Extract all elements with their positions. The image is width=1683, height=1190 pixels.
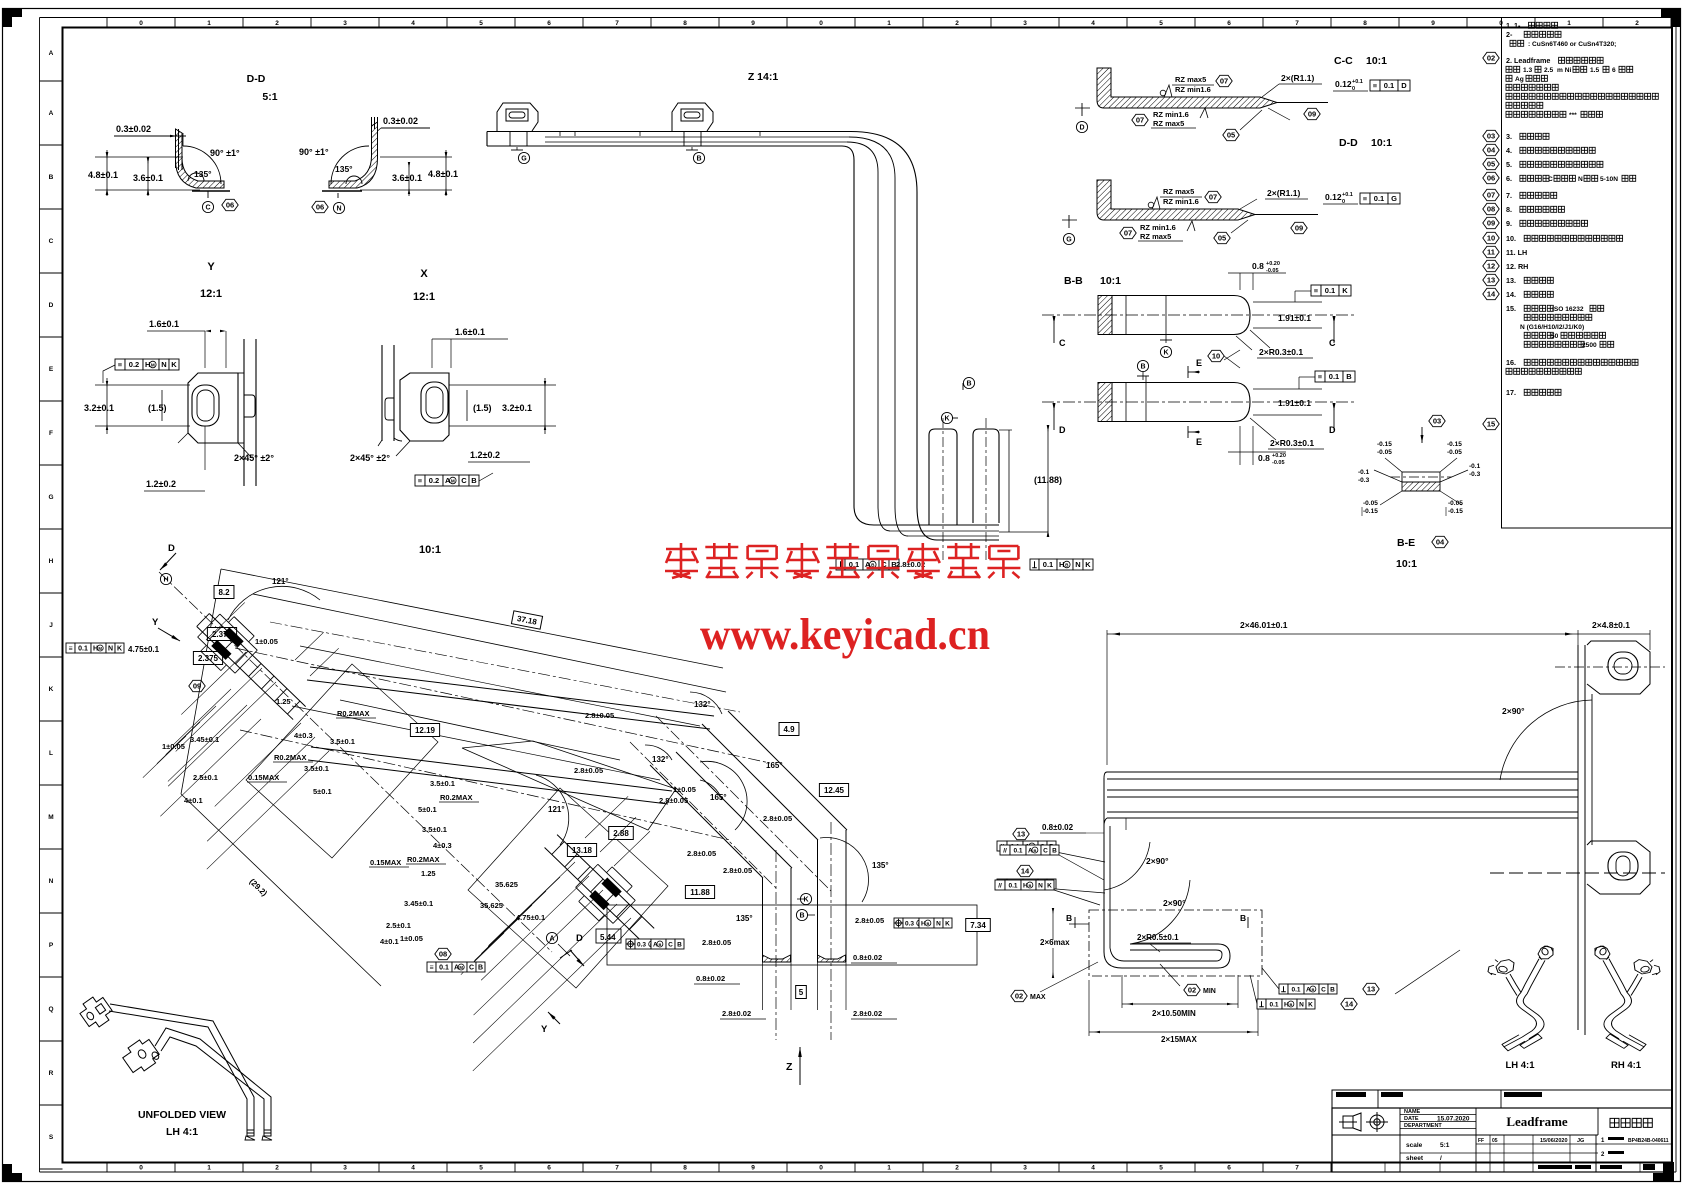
- svg-text:11.88: 11.88: [690, 888, 710, 897]
- svg-text:≡: ≡: [418, 476, 423, 485]
- svg-text:2.8±0.02: 2.8±0.02: [853, 1009, 882, 1018]
- svg-text:03: 03: [1433, 417, 1441, 426]
- svg-text:14: 14: [1345, 1000, 1354, 1009]
- svg-text:6: 6: [547, 20, 551, 27]
- svg-text:09: 09: [1308, 110, 1316, 119]
- svg-text:0.15MAX: 0.15MAX: [248, 773, 279, 782]
- svg-text:0.3±0.02: 0.3±0.02: [383, 116, 418, 126]
- svg-text:R0.2MAX: R0.2MAX: [337, 709, 370, 718]
- svg-text:1. 1-: 1. 1-: [1506, 21, 1521, 30]
- svg-text:B: B: [1028, 883, 1031, 888]
- svg-text:N (G16/H10/I2/J1/K0): N (G16/H10/I2/J1/K0): [1520, 324, 1584, 331]
- svg-text:RZ max5: RZ max5: [1175, 75, 1206, 84]
- svg-text:17.: 17.: [1506, 388, 1516, 397]
- svg-text:B: B: [1311, 987, 1314, 992]
- svg-text:E: E: [1196, 437, 1202, 447]
- svg-text:***: ***: [1569, 112, 1577, 119]
- svg-text:02: 02: [1487, 54, 1495, 63]
- svg-text:B: B: [1140, 364, 1145, 371]
- svg-text:4±0.1: 4±0.1: [380, 937, 399, 946]
- svg-text:13: 13: [1367, 985, 1375, 994]
- svg-text:-0.15: -0.15: [1448, 508, 1463, 515]
- svg-text:2: 2: [275, 20, 279, 27]
- svg-text:G: G: [521, 156, 527, 163]
- svg-text:10:1: 10:1: [1396, 558, 1417, 570]
- svg-text:JG: JG: [1577, 1138, 1584, 1144]
- svg-text:2.8±0.05: 2.8±0.05: [723, 866, 752, 875]
- svg-text:2500: 2500: [1582, 342, 1597, 349]
- svg-text:10:1: 10:1: [1371, 137, 1392, 149]
- svg-text:5.: 5.: [1506, 160, 1512, 169]
- svg-text:135°: 135°: [194, 169, 212, 179]
- svg-text:165°: 165°: [710, 793, 727, 802]
- svg-text:7: 7: [1295, 20, 1299, 27]
- svg-text:12: 12: [1487, 262, 1495, 271]
- svg-text:10: 10: [1212, 352, 1220, 361]
- svg-text:5±0.1: 5±0.1: [418, 805, 437, 814]
- svg-text:NAME: NAME: [1404, 1109, 1421, 1115]
- svg-text:2×R0.3±0.1: 2×R0.3±0.1: [1270, 438, 1314, 448]
- svg-text:-0.05: -0.05: [1363, 500, 1378, 507]
- svg-text:K: K: [117, 646, 122, 653]
- svg-text:2×(R1.1): 2×(R1.1): [1267, 188, 1300, 198]
- svg-text:2×90°: 2×90°: [1146, 856, 1169, 866]
- svg-text:06: 06: [316, 203, 324, 212]
- svg-text:5: 5: [479, 1165, 483, 1172]
- svg-text:A: A: [49, 110, 54, 117]
- svg-text:0.1: 0.1: [1269, 1002, 1278, 1009]
- svg-text:B: B: [471, 476, 477, 485]
- svg-text:0.1: 0.1: [1374, 194, 1384, 203]
- svg-text:D: D: [1079, 125, 1084, 132]
- svg-text:4: 4: [1091, 1165, 1095, 1172]
- svg-text:08: 08: [439, 950, 447, 959]
- svg-text:1±0.05: 1±0.05: [673, 785, 696, 794]
- svg-text:B: B: [478, 965, 483, 972]
- svg-text:8: 8: [1363, 20, 1367, 27]
- svg-text:2.8±0.02: 2.8±0.02: [722, 1009, 751, 1018]
- svg-text:2.8±0.05: 2.8±0.05: [659, 796, 688, 805]
- svg-text:2×90°: 2×90°: [1502, 706, 1525, 716]
- svg-text:3.: 3.: [1506, 132, 1512, 141]
- svg-text:0.1: 0.1: [1384, 81, 1394, 90]
- svg-text:1±0.05: 1±0.05: [162, 742, 185, 751]
- svg-text:D: D: [576, 933, 583, 944]
- svg-text:DATE: DATE: [1404, 1116, 1419, 1122]
- svg-text:D-D: D-D: [247, 73, 266, 85]
- svg-text:R0.2MAX: R0.2MAX: [407, 855, 440, 864]
- svg-text:132°: 132°: [652, 755, 669, 764]
- svg-text:50: 50: [1551, 333, 1559, 340]
- svg-text:2.8±0.05: 2.8±0.05: [702, 938, 731, 947]
- svg-text:G: G: [1066, 237, 1072, 244]
- svg-text:15: 15: [1487, 420, 1495, 429]
- svg-text:≡: ≡: [1363, 194, 1368, 203]
- svg-text:9: 9: [751, 20, 755, 27]
- svg-text:3.5±0.1: 3.5±0.1: [430, 779, 455, 788]
- svg-text:: CuSn6T460 or CuSn4T320;: : CuSn6T460 or CuSn4T320;: [1528, 41, 1616, 48]
- svg-text:9.: 9.: [1506, 219, 1512, 228]
- svg-text:UNFOLDED VIEW: UNFOLDED VIEW: [138, 1109, 226, 1121]
- svg-text:2×6max: 2×6max: [1040, 938, 1070, 947]
- svg-text:RZ min1.6: RZ min1.6: [1153, 110, 1189, 119]
- svg-text:0.8±0.02: 0.8±0.02: [853, 953, 882, 962]
- svg-text:B: B: [1346, 372, 1352, 381]
- svg-text:M: M: [98, 646, 102, 651]
- svg-text:N: N: [161, 360, 166, 369]
- svg-text:12. RH: 12. RH: [1506, 262, 1528, 271]
- svg-text:K: K: [1047, 883, 1052, 890]
- svg-text:4.75±0.1: 4.75±0.1: [128, 645, 160, 654]
- svg-text:C: C: [668, 942, 673, 949]
- svg-text:B: B: [1240, 913, 1246, 923]
- svg-text:C-C: C-C: [1334, 55, 1353, 67]
- svg-text:N: N: [1038, 883, 1043, 890]
- svg-text:2×46.01±0.1: 2×46.01±0.1: [1240, 620, 1288, 630]
- svg-text:2: 2: [955, 20, 959, 27]
- svg-text:A: A: [549, 936, 554, 943]
- svg-text:K: K: [803, 897, 808, 904]
- svg-text:6: 6: [1612, 67, 1616, 74]
- svg-text:N: N: [49, 878, 54, 885]
- svg-text:2×R0.3±0.1: 2×R0.3±0.1: [1259, 347, 1303, 357]
- svg-text:N: N: [108, 646, 113, 653]
- svg-text:6.: 6.: [1506, 174, 1512, 183]
- svg-text:sheet: sheet: [1406, 1155, 1424, 1162]
- svg-text:06: 06: [226, 201, 234, 210]
- svg-text:2: 2: [955, 1165, 959, 1172]
- svg-text:05: 05: [1218, 234, 1226, 243]
- svg-text:4±0.3: 4±0.3: [433, 841, 452, 850]
- svg-text:7.34: 7.34: [970, 921, 986, 930]
- svg-text:07: 07: [1124, 229, 1132, 238]
- svg-text:K: K: [945, 921, 950, 928]
- svg-text:90° ±1°: 90° ±1°: [299, 147, 329, 157]
- svg-text:13: 13: [1487, 276, 1495, 285]
- svg-text:2. Leadframe: 2. Leadframe: [1506, 56, 1550, 65]
- svg-text:2-: 2-: [1506, 30, 1513, 39]
- svg-text:0.15MAX: 0.15MAX: [370, 858, 401, 867]
- svg-text:K: K: [944, 416, 949, 423]
- svg-text:0.8±0.02: 0.8±0.02: [1042, 823, 1074, 832]
- svg-text:C: C: [1043, 848, 1048, 855]
- svg-text:9: 9: [751, 1165, 755, 1172]
- svg-text:K: K: [1163, 350, 1168, 357]
- svg-text:-0.15: -0.15: [1363, 508, 1378, 515]
- svg-text:1.2±0.2: 1.2±0.2: [146, 479, 176, 489]
- svg-text:RH 4:1: RH 4:1: [1611, 1060, 1642, 1071]
- svg-text:FF: FF: [1478, 1138, 1484, 1144]
- svg-text:4.9: 4.9: [783, 725, 795, 734]
- svg-text:0.8±0.02: 0.8±0.02: [696, 974, 725, 983]
- svg-text:121°: 121°: [548, 805, 565, 814]
- svg-text:DEPARTMENT: DEPARTMENT: [1404, 1123, 1442, 1129]
- svg-text:11. LH: 11. LH: [1506, 248, 1527, 257]
- svg-text:2: 2: [1635, 20, 1639, 27]
- svg-text:M: M: [48, 814, 53, 821]
- svg-text:2.8±0.05: 2.8±0.05: [687, 849, 716, 858]
- svg-text:0.1: 0.1: [78, 646, 88, 653]
- svg-text:12:1: 12:1: [413, 291, 435, 303]
- svg-text:07: 07: [1220, 77, 1228, 86]
- svg-text:07: 07: [1487, 191, 1495, 200]
- svg-text:≡: ≡: [68, 646, 72, 653]
- svg-text:4±0.3: 4±0.3: [294, 731, 313, 740]
- svg-text:90° ±1°: 90° ±1°: [210, 148, 240, 158]
- svg-text:7: 7: [1295, 1165, 1299, 1172]
- svg-text:1.5: 1.5: [1590, 67, 1599, 74]
- svg-text:09: 09: [1487, 219, 1495, 228]
- svg-text:≡: ≡: [429, 965, 433, 972]
- svg-text:08: 08: [1487, 205, 1495, 214]
- svg-text:-0.3: -0.3: [1358, 477, 1370, 484]
- svg-text:10: 10: [1487, 234, 1495, 243]
- svg-text:4: 4: [411, 20, 415, 27]
- svg-text:135°: 135°: [872, 861, 889, 870]
- svg-text:X: X: [420, 268, 428, 280]
- svg-text:C: C: [1059, 338, 1066, 348]
- svg-text:121°: 121°: [272, 577, 289, 586]
- svg-text:≡: ≡: [118, 360, 123, 369]
- svg-text:6: 6: [1227, 20, 1231, 27]
- svg-text:LH 4:1: LH 4:1: [1505, 1060, 1535, 1071]
- svg-text:9: 9: [1431, 20, 1435, 27]
- svg-text:4.: 4.: [1506, 146, 1512, 155]
- svg-text:scale: scale: [1406, 1142, 1423, 1149]
- svg-text:≡: ≡: [1314, 286, 1319, 295]
- svg-text:15.: 15.: [1506, 304, 1516, 313]
- svg-text:2×90°: 2×90°: [1163, 898, 1186, 908]
- svg-text:0.1: 0.1: [1291, 987, 1300, 994]
- svg-text:R: R: [49, 1070, 54, 1077]
- svg-text:ISO 16232: ISO 16232: [1552, 306, 1584, 313]
- svg-text:05: 05: [1227, 131, 1235, 140]
- svg-text:B: B: [677, 942, 682, 949]
- svg-text:3.6±0.1: 3.6±0.1: [392, 173, 422, 183]
- svg-text:11: 11: [1487, 248, 1495, 257]
- svg-text:B: B: [1066, 913, 1072, 923]
- svg-text:N: N: [1578, 176, 1583, 183]
- svg-text:-0.1: -0.1: [1469, 463, 1481, 470]
- svg-text:N: N: [936, 921, 941, 928]
- svg-text:B: B: [1289, 1002, 1292, 1007]
- svg-text:Ag: Ag: [1515, 76, 1524, 83]
- svg-text:4: 4: [411, 1165, 415, 1172]
- svg-text:3: 3: [343, 20, 347, 27]
- svg-text:10.: 10.: [1506, 234, 1516, 243]
- svg-text:-0.05: -0.05: [1448, 500, 1463, 507]
- svg-text:03: 03: [1487, 132, 1495, 141]
- svg-text:5: 5: [799, 988, 804, 997]
- svg-text:3: 3: [1023, 20, 1027, 27]
- svg-text:07: 07: [1136, 116, 1144, 125]
- svg-text:K: K: [1085, 560, 1091, 569]
- svg-text:B-B: B-B: [1064, 275, 1083, 287]
- svg-text:0.1: 0.1: [1043, 560, 1053, 569]
- svg-text:1: 1: [887, 20, 891, 27]
- svg-text:13: 13: [1017, 830, 1025, 839]
- svg-text:R0.2MAX: R0.2MAX: [440, 793, 473, 802]
- svg-text:5.44: 5.44: [600, 933, 616, 942]
- svg-text:0: 0: [139, 1165, 143, 1172]
- svg-text:2.5±0.1: 2.5±0.1: [193, 773, 218, 782]
- svg-text:-0.1: -0.1: [1358, 469, 1370, 476]
- svg-text:C: C: [49, 238, 54, 245]
- svg-text:G: G: [1391, 194, 1397, 203]
- svg-text:E: E: [1196, 358, 1202, 368]
- svg-text:2.8±0.05: 2.8±0.05: [585, 711, 614, 720]
- svg-text:5:1: 5:1: [262, 91, 277, 103]
- svg-text:6: 6: [547, 1165, 551, 1172]
- svg-text:1: 1: [207, 20, 211, 27]
- svg-text:B: B: [926, 921, 929, 926]
- svg-text:C: C: [1548, 176, 1553, 183]
- svg-text:4.8±0.1: 4.8±0.1: [428, 169, 458, 179]
- svg-text:LH 4:1: LH 4:1: [166, 1126, 198, 1138]
- svg-text:M: M: [151, 362, 155, 367]
- svg-text:3.2±0.1: 3.2±0.1: [502, 403, 532, 413]
- svg-text:B: B: [799, 913, 804, 920]
- svg-text:M: M: [451, 478, 455, 483]
- svg-text:2.8±0.05: 2.8±0.05: [855, 916, 884, 925]
- svg-text:14: 14: [1487, 290, 1496, 299]
- svg-text:A: A: [49, 50, 54, 57]
- svg-text:≡: ≡: [1318, 372, 1323, 381]
- svg-text:C: C: [205, 205, 210, 212]
- svg-text:C: C: [461, 476, 467, 485]
- svg-text:0.12: 0.12: [1335, 79, 1352, 89]
- svg-text:0.8: 0.8: [1252, 261, 1264, 271]
- svg-text:5: 5: [1159, 1165, 1163, 1172]
- svg-text:2.8±0.05: 2.8±0.05: [574, 766, 603, 775]
- svg-text:RZ min1.6: RZ min1.6: [1175, 85, 1211, 94]
- svg-text:+0.20: +0.20: [1272, 453, 1286, 459]
- svg-text:8: 8: [683, 20, 687, 27]
- svg-text:5: 5: [479, 20, 483, 27]
- svg-text:(1.5): (1.5): [473, 403, 492, 413]
- svg-text:S: S: [49, 1134, 54, 1141]
- svg-text:E: E: [49, 366, 54, 373]
- svg-text:35.625: 35.625: [480, 901, 503, 910]
- svg-text:2.8±0.02: 2.8±0.02: [896, 560, 925, 569]
- svg-text://: //: [1003, 848, 1007, 855]
- svg-text:Y: Y: [541, 1024, 548, 1035]
- svg-text:0: 0: [139, 20, 143, 27]
- svg-text:G: G: [48, 494, 53, 501]
- svg-text:D: D: [1059, 425, 1066, 435]
- svg-text:3.5±0.1: 3.5±0.1: [422, 825, 447, 834]
- svg-text:www.keyicad.cn: www.keyicad.cn: [700, 610, 990, 659]
- svg-text:Y: Y: [152, 617, 159, 628]
- svg-text://: //: [998, 883, 1002, 890]
- svg-text:m Ni: m Ni: [1557, 67, 1571, 74]
- svg-text:6: 6: [1227, 1165, 1231, 1172]
- svg-text:3.45±0.1: 3.45±0.1: [404, 899, 433, 908]
- svg-text:MAX: MAX: [1030, 994, 1046, 1001]
- svg-text:7.: 7.: [1506, 191, 1512, 200]
- svg-text:N: N: [1075, 560, 1080, 569]
- svg-text:M: M: [459, 965, 463, 970]
- svg-text:D: D: [1401, 81, 1407, 90]
- svg-text:15/06/2020: 15/06/2020: [1540, 1138, 1568, 1144]
- svg-text:BP4B24B-040611: BP4B24B-040611: [1628, 1138, 1669, 1144]
- svg-text:1.25: 1.25: [276, 697, 291, 706]
- svg-text:3: 3: [343, 1165, 347, 1172]
- svg-text:B: B: [658, 942, 661, 947]
- svg-text:-0.05: -0.05: [1447, 449, 1462, 456]
- svg-text:Z 14:1: Z 14:1: [748, 71, 779, 83]
- svg-text:Z: Z: [786, 1061, 793, 1073]
- svg-text:165°: 165°: [766, 761, 783, 770]
- svg-text:10:1: 10:1: [1366, 55, 1387, 67]
- svg-text:2×10.50MIN: 2×10.50MIN: [1152, 1009, 1196, 1018]
- svg-text:B: B: [966, 381, 971, 388]
- svg-text:-0.05: -0.05: [1377, 449, 1392, 456]
- svg-text:1.6±0.1: 1.6±0.1: [455, 327, 485, 337]
- svg-text:B: B: [49, 174, 54, 181]
- svg-text:D: D: [49, 302, 54, 309]
- svg-text:5-10N: 5-10N: [1600, 176, 1618, 183]
- svg-text:H: H: [49, 558, 54, 565]
- svg-text:2×45° ±2°: 2×45° ±2°: [234, 453, 274, 463]
- svg-text:MIN: MIN: [1203, 988, 1216, 995]
- svg-text:1.91±0.1: 1.91±0.1: [1278, 313, 1311, 323]
- svg-text:N: N: [336, 206, 341, 213]
- svg-text:+0.1: +0.1: [1342, 192, 1353, 198]
- svg-text:5±0.1: 5±0.1: [313, 787, 332, 796]
- svg-text:8.2: 8.2: [218, 588, 230, 597]
- svg-text:05: 05: [1492, 1138, 1498, 1144]
- svg-text:16.: 16.: [1506, 358, 1516, 367]
- svg-text:B: B: [1330, 987, 1335, 994]
- svg-text:+0.1: +0.1: [1352, 79, 1363, 85]
- svg-text:0: 0: [819, 20, 823, 27]
- svg-text:15.07.2020: 15.07.2020: [1437, 1116, 1470, 1123]
- svg-text:4.75±0.1: 4.75±0.1: [516, 913, 545, 922]
- svg-text:3: 3: [1023, 1165, 1027, 1172]
- svg-text:0.3±0.02: 0.3±0.02: [116, 124, 151, 134]
- svg-text:132°: 132°: [694, 700, 711, 709]
- svg-text:B: B: [1033, 848, 1036, 853]
- svg-text:K: K: [1342, 286, 1348, 295]
- svg-text:0: 0: [819, 1165, 823, 1172]
- svg-text:0.1: 0.1: [1008, 883, 1017, 890]
- svg-text:2.5±0.1: 2.5±0.1: [386, 921, 411, 930]
- svg-text:(1.5): (1.5): [148, 403, 167, 413]
- svg-text:14.: 14.: [1506, 290, 1516, 299]
- svg-text:2×4.8±0.1: 2×4.8±0.1: [1592, 620, 1630, 630]
- svg-text:2×R0.5±0.1: 2×R0.5±0.1: [1137, 933, 1179, 942]
- svg-text:K: K: [171, 360, 177, 369]
- svg-text:8: 8: [683, 1165, 687, 1172]
- svg-text:02: 02: [1015, 992, 1023, 1001]
- svg-text:RZ max5: RZ max5: [1153, 119, 1184, 128]
- svg-text:D: D: [168, 543, 175, 554]
- svg-text:04: 04: [1436, 538, 1445, 547]
- svg-text:C: C: [1329, 338, 1336, 348]
- svg-text:0.1: 0.1: [1325, 286, 1335, 295]
- svg-text:4±0.1: 4±0.1: [184, 796, 203, 805]
- svg-text:+0.20: +0.20: [1266, 261, 1280, 267]
- svg-text:0.2: 0.2: [429, 476, 439, 485]
- svg-text:≡: ≡: [1373, 81, 1378, 90]
- svg-text:0.3: 0.3: [905, 921, 914, 928]
- svg-text:C: C: [1321, 987, 1326, 994]
- svg-text:1.3: 1.3: [1523, 67, 1532, 74]
- svg-text:-0.05: -0.05: [1272, 460, 1285, 466]
- svg-text:7: 7: [615, 20, 619, 27]
- svg-text:2×45° ±2°: 2×45° ±2°: [350, 453, 390, 463]
